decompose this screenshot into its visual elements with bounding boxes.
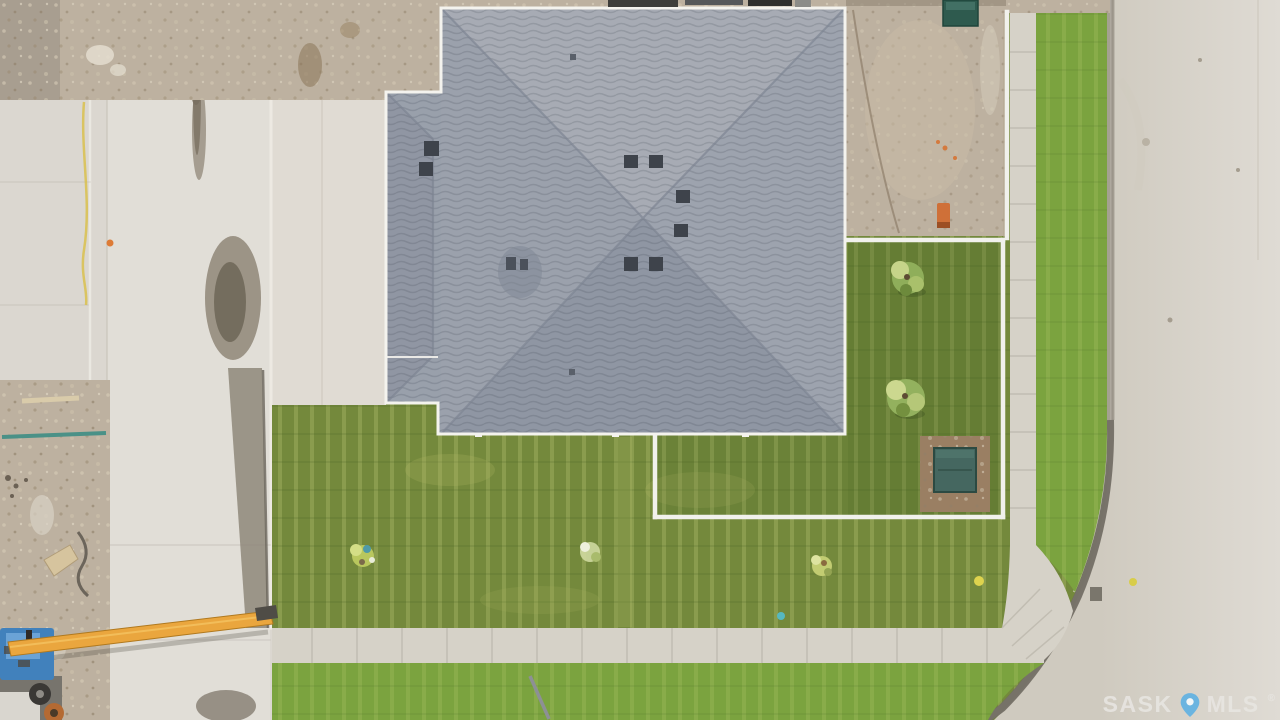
yellow-plant-2: [1129, 578, 1137, 586]
roof-faces: [380, 0, 850, 440]
yellow-plant-1: [974, 576, 984, 586]
sprinkler-marker: [777, 612, 785, 620]
wood-plank: [22, 398, 79, 401]
house-roof: [380, 0, 850, 440]
roof-shadow-patch: [498, 246, 542, 298]
watermark-brand-left: SASK: [1103, 691, 1173, 718]
gravel-corner: [0, 0, 60, 100]
catch-basin: [1090, 587, 1102, 601]
aerial-photo-canvas: [0, 0, 1280, 720]
watermark-registered: ®: [1268, 693, 1275, 704]
aerial-photo: SASK MLS ®: [0, 0, 1280, 720]
watermark: SASK MLS ®: [1103, 691, 1275, 718]
orange-marker: [107, 240, 114, 247]
watermark-brand-right: MLS: [1207, 691, 1260, 718]
utility-pad: [920, 436, 990, 512]
location-pin-icon: [1179, 692, 1201, 718]
